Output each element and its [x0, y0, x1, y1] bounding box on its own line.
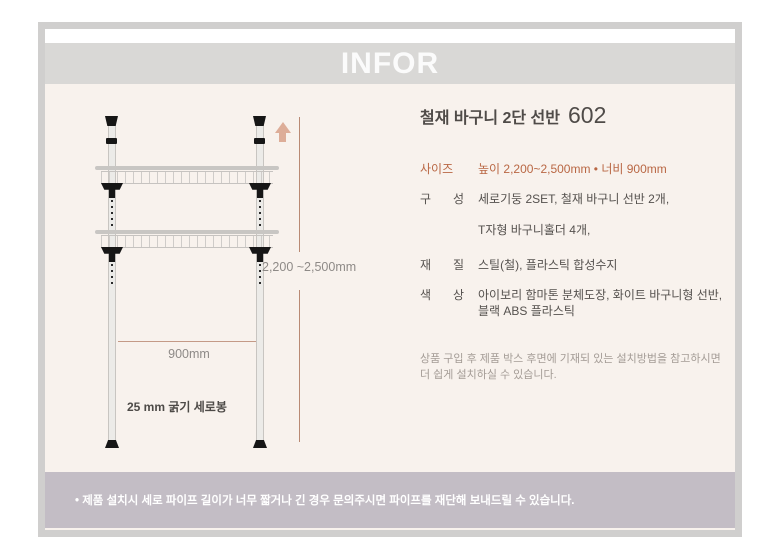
- height-dimension-line-lower: [299, 290, 300, 442]
- spec-composition-line1: 세로기둥 2SET, 철재 바구니 선반 2개,: [478, 192, 669, 207]
- product-name: 철재 바구니 2단 선반: [420, 110, 560, 127]
- up-arrow-stem: [279, 132, 286, 142]
- spec-size-line: 높이 2,200~2,500mm • 너비 900mm: [478, 162, 667, 177]
- height-dimension-line-upper: [299, 117, 300, 252]
- spec-row-size: 사이즈 높이 2,200~2,500mm • 너비 900mm: [420, 162, 667, 177]
- spec-value-composition: 세로기둥 2SET, 철재 바구니 선반 2개, T자형 바구니홀더 4개,: [478, 192, 669, 238]
- width-dimension-label: 900mm: [144, 347, 234, 361]
- product-info: 철재 바구니 2단 선반602 사이즈 높이 2,200~2,500mm • 너…: [420, 84, 735, 472]
- footer-notice-bar: • 제품 설치시 세로 파이프 길이가 너무 짧거나 긴 경우 문의주시면 파이…: [45, 472, 735, 528]
- left-pole-cap-icon: [105, 116, 118, 126]
- wire-basket-1: [101, 171, 273, 184]
- product-diagram: 2,200 ~2,500mm 900mm 25 mm 굵기 세로봉: [45, 84, 420, 472]
- left-pole-collar-icon: [106, 138, 117, 144]
- spec-label-size: 사이즈: [420, 162, 464, 177]
- right-pole-collar-icon: [254, 138, 265, 144]
- left-pole-dashes-lower: [111, 264, 113, 288]
- spec-row-composition: 구 성 세로기둥 2SET, 철재 바구니 선반 2개, T자형 바구니홀더 4…: [420, 192, 669, 238]
- basket-holder-2-left: [101, 247, 123, 262]
- product-title: 철재 바구니 2단 선반602: [420, 102, 606, 129]
- height-dimension-label: 2,200 ~2,500mm: [262, 260, 356, 274]
- installation-note: 상품 구입 후 제품 박스 후면에 기재되 있는 설치방법을 참고하시면 더 쉽…: [420, 352, 721, 383]
- left-pole-dashes-upper: [111, 200, 113, 228]
- basket-holder-1-right: [249, 183, 271, 198]
- installation-note-line1: 상품 구입 후 제품 박스 후면에 기재되 있는 설치방법을 참고하시면: [420, 352, 721, 368]
- footer-notice-text: • 제품 설치시 세로 파이프 길이가 너무 짧거나 긴 경우 문의주시면 파이…: [75, 492, 575, 508]
- right-pole-cap-icon: [253, 116, 266, 126]
- spec-composition-line2: T자형 바구니홀더 4개,: [478, 223, 669, 238]
- content-area: 2,200 ~2,500mm 900mm 25 mm 굵기 세로봉 철재 바구니…: [45, 84, 735, 472]
- page-title: INFOR: [341, 47, 439, 81]
- width-dimension-line: [118, 341, 256, 342]
- spec-value-size: 높이 2,200~2,500mm • 너비 900mm: [478, 162, 667, 177]
- spec-value-color: 아이보리 함마톤 분체도장, 화이트 바구니형 선반, 블랙 ABS 플라스틱: [478, 287, 722, 319]
- spec-label-material: 재 질: [420, 258, 464, 273]
- spec-row-material: 재 질 스틸(철), 플라스틱 합성수지: [420, 258, 617, 273]
- info-card: INFOR: [38, 22, 742, 537]
- spec-color-line2: 블랙 ABS 플라스틱: [478, 303, 722, 319]
- shelf-rail-2: [95, 230, 279, 234]
- spec-color-line1: 아이보리 함마톤 분체도장, 화이트 바구니형 선반,: [478, 287, 722, 303]
- basket-holder-1-left: [101, 183, 123, 198]
- header-band: INFOR: [45, 43, 735, 84]
- spec-label-composition: 구 성: [420, 192, 464, 238]
- right-pole-foot-icon: [253, 440, 267, 448]
- spec-row-color: 색 상 아이보리 함마톤 분체도장, 화이트 바구니형 선반, 블랙 ABS 플…: [420, 287, 722, 319]
- spec-material-line: 스틸(철), 플라스틱 합성수지: [478, 258, 617, 273]
- spec-value-material: 스틸(철), 플라스틱 합성수지: [478, 258, 617, 273]
- left-pole-foot-icon: [105, 440, 119, 448]
- right-pole-dashes-lower: [259, 264, 261, 288]
- wire-basket-2: [101, 235, 273, 248]
- right-pole-dashes-upper: [259, 200, 261, 228]
- pole-thickness-label: 25 mm 굵기 세로봉: [127, 398, 227, 415]
- shelf-rail-1: [95, 166, 279, 170]
- product-model-number: 602: [568, 102, 606, 128]
- installation-note-line2: 더 쉽게 설치하실 수 있습니다.: [420, 368, 721, 384]
- top-white-strip: [45, 29, 735, 43]
- spec-label-color: 색 상: [420, 287, 464, 319]
